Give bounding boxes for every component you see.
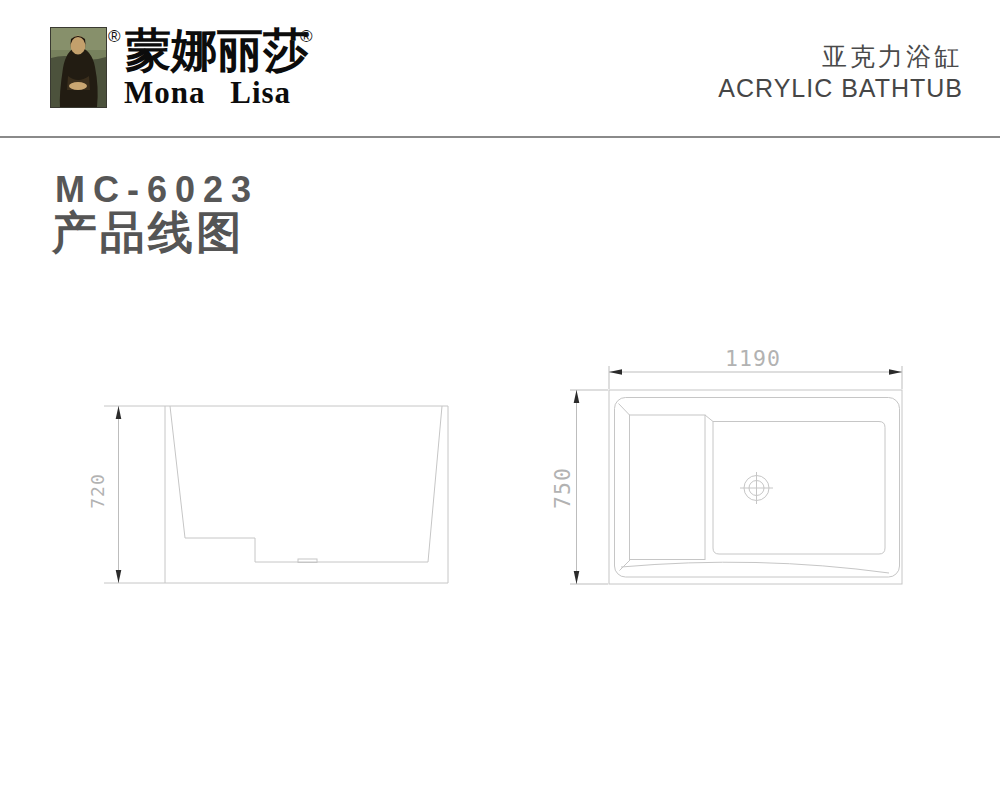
top-depth-dim-label: 750 [550,467,575,509]
mona-lisa-painting-art [51,28,106,107]
product-sheet: ® 蒙娜丽莎 ® Mona Lisa 亚克力浴缸 ACRYLIC BATHTUB… [0,0,1000,797]
side-dim-arrow-down [116,570,122,583]
model-number: MC-6023 [55,172,259,208]
top-width-arrow-right [889,369,902,375]
top-front-curve [621,562,889,573]
technical-drawings-canvas: 720 1190 [0,330,1000,620]
registered-mark-left: ® [108,28,121,45]
brand-logo-painting [50,27,107,108]
top-width-arrow-left [609,369,622,375]
top-bevel-top-left [619,404,630,416]
side-tub-profile [170,406,442,562]
product-category-english: ACRYLIC BATHTUB [718,76,963,101]
brand-name-chinese: 蒙娜丽莎 [125,27,309,73]
top-depth-extension-lines [570,390,608,584]
top-outer-rect [609,390,902,584]
top-seat-panel [630,415,706,560]
registered-mark-right: ® [300,28,313,45]
top-depth-arrow-up [574,390,580,403]
side-dim-arrow-up [116,406,122,419]
sheet-subtitle-zh: 产品线图 [52,210,244,255]
top-basin-outline [705,415,885,554]
top-view-drawing: 1190 750 [550,346,902,584]
side-view-drawing: 720 [87,406,448,583]
product-category-chinese: 亚克力浴缸 [822,44,962,69]
drain-crosshair [740,472,773,504]
header-divider-line [0,136,1000,138]
top-depth-arrow-down [574,571,580,584]
top-width-dim-label: 1190 [725,346,781,371]
top-bevel-bottom-left [620,560,631,571]
brand-name-english: Mona Lisa [124,77,291,108]
side-height-dim-label: 720 [87,473,108,509]
